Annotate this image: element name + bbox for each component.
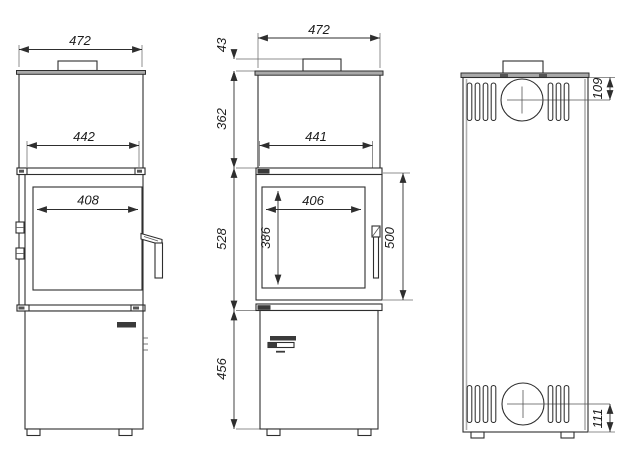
front-top-section-label: 362	[214, 107, 229, 129]
back-flue-collar	[503, 61, 543, 74]
front-firebox-section-label: 528	[214, 227, 229, 249]
front-view: 472 43 362 528 456	[214, 22, 413, 436]
back-dim-inlet-axis: 111	[589, 404, 615, 432]
front-air-control-bottom	[258, 305, 271, 310]
back-feet	[471, 432, 574, 438]
front-glass-height-label: 386	[258, 226, 273, 248]
back-flue-axis-label: 109	[590, 78, 605, 100]
side-upper-shelf	[17, 168, 145, 175]
front-dim-collar-height: 43	[214, 37, 234, 80]
front-air-control-top	[258, 169, 270, 174]
front-upper-body	[258, 75, 380, 168]
front-inner-width-label: 441	[305, 129, 327, 144]
front-door-handle	[372, 226, 380, 278]
front-door-height-label: 500	[382, 226, 397, 248]
front-dim-inner-width: 441	[260, 129, 373, 168]
front-upper-shelf	[256, 168, 382, 175]
back-inlet-axis-label: 111	[590, 409, 605, 429]
front-base-section-label: 456	[214, 357, 229, 379]
side-door-handle	[141, 234, 163, 279]
front-dim-base-section: 456	[214, 311, 234, 430]
front-collar-height-label: 43	[214, 37, 229, 52]
side-dim-inner-width: 442	[27, 129, 139, 167]
side-lower-shelf	[17, 305, 145, 311]
front-glass-width-label: 406	[302, 193, 324, 208]
front-top-plate	[255, 71, 383, 75]
front-flue-collar	[303, 59, 341, 71]
back-dim-flue-axis: 109	[589, 78, 615, 101]
front-base-cabinet	[260, 311, 378, 430]
side-base-cabinet	[25, 311, 148, 429]
front-dim-firebox-section: 528	[214, 168, 234, 311]
side-overall-width-label: 472	[69, 33, 91, 48]
front-dim-top-section: 362	[214, 71, 234, 168]
side-brand-label	[117, 322, 136, 328]
side-hinges	[16, 222, 24, 259]
back-top-plate	[461, 73, 589, 78]
front-lower-shelf	[256, 304, 382, 311]
back-view: 109 111	[461, 61, 615, 438]
side-flue-collar	[58, 61, 97, 71]
side-top-plate	[17, 71, 146, 75]
front-feet	[267, 429, 371, 436]
front-overall-width-label: 472	[308, 22, 330, 37]
side-feet	[27, 429, 132, 436]
back-body	[463, 78, 588, 433]
side-glass-width-label: 408	[77, 193, 99, 208]
front-dim-door-height: 500	[382, 173, 413, 300]
side-upper-body	[19, 74, 143, 168]
side-inner-width-label: 442	[73, 129, 95, 144]
side-view: 472 442	[16, 33, 163, 436]
technical-drawing-stove: 472 442	[0, 0, 624, 460]
